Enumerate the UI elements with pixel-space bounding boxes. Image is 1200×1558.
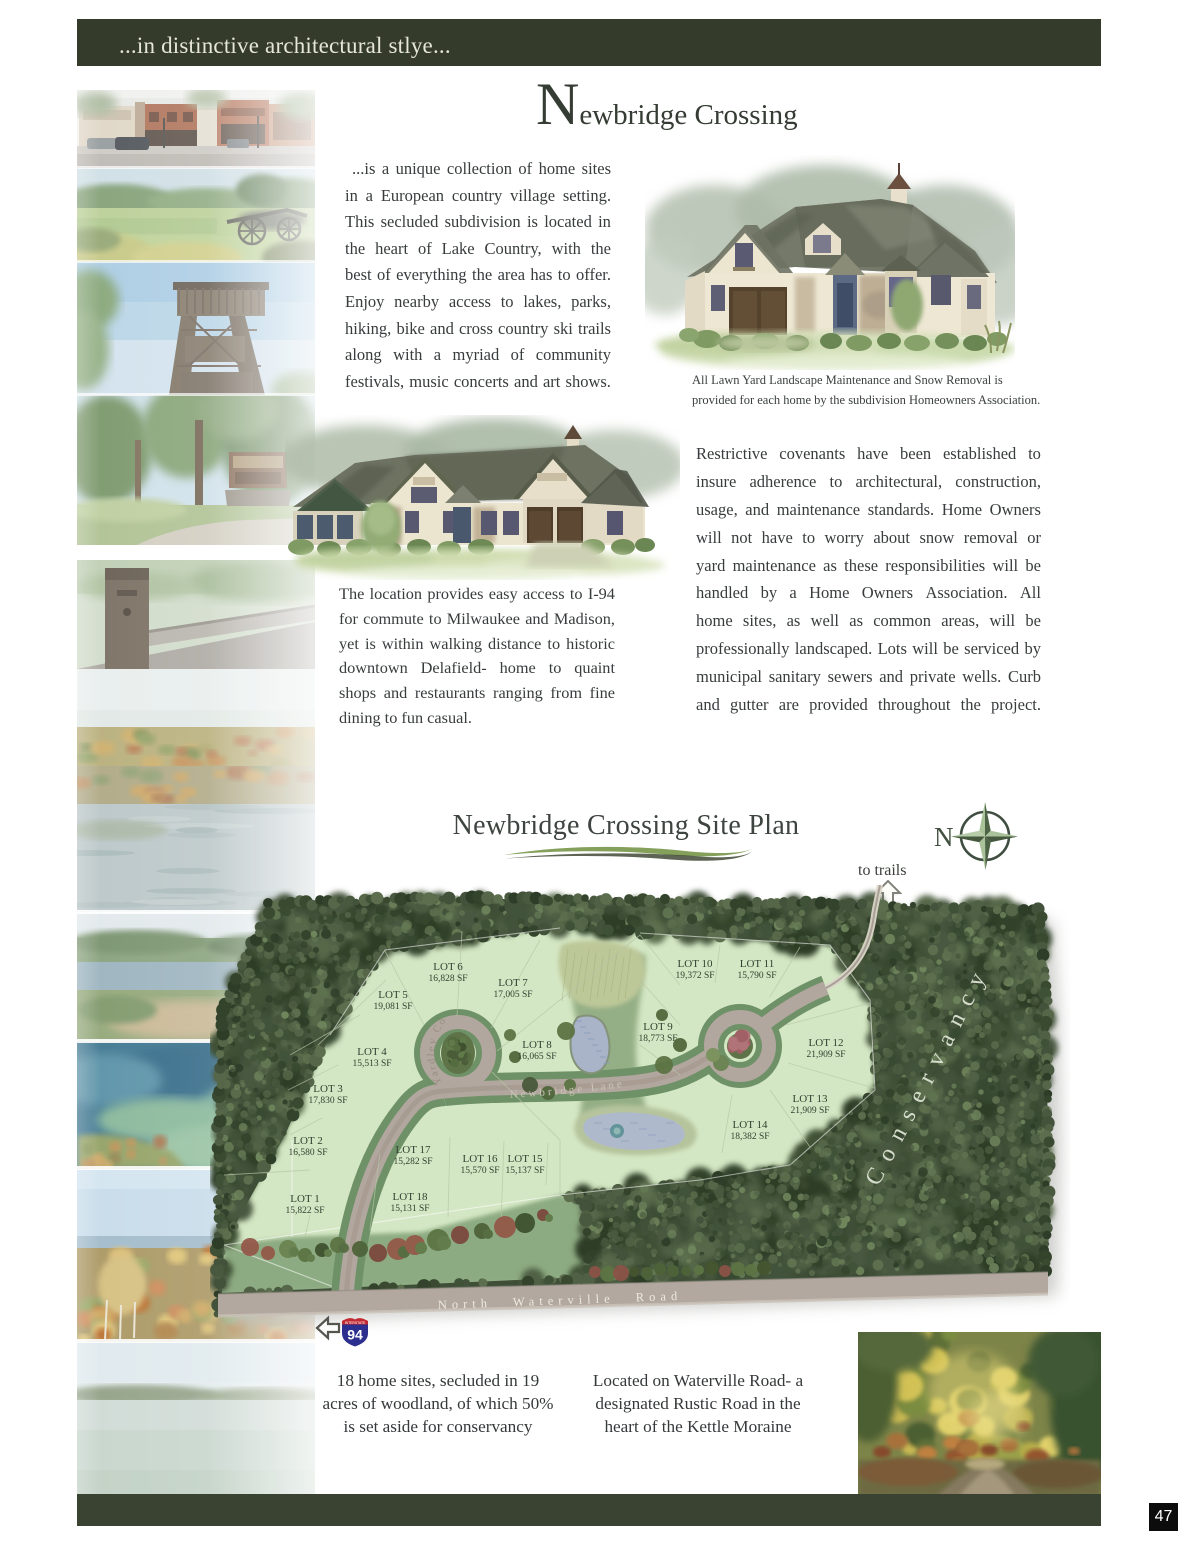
- svg-text:16,828 SF: 16,828 SF: [428, 974, 467, 984]
- svg-text:LOT 10: LOT 10: [678, 958, 713, 970]
- svg-text:LOT 17: LOT 17: [396, 1144, 431, 1156]
- svg-text:LOT 1: LOT 1: [290, 1193, 319, 1205]
- svg-text:LOT 14: LOT 14: [733, 1119, 768, 1131]
- svg-text:LOT 9: LOT 9: [643, 1021, 673, 1033]
- svg-text:94: 94: [347, 1327, 363, 1343]
- svg-text:LOT 13: LOT 13: [793, 1093, 828, 1105]
- svg-text:LOT 7: LOT 7: [498, 977, 528, 989]
- svg-text:LOT 15: LOT 15: [508, 1153, 543, 1165]
- svg-text:15,131 SF: 15,131 SF: [390, 1204, 429, 1214]
- svg-text:17,005 SF: 17,005 SF: [493, 990, 532, 1000]
- svg-text:21,909 SF: 21,909 SF: [790, 1106, 829, 1116]
- svg-text:N: N: [934, 822, 954, 852]
- svg-text:LOT 2: LOT 2: [293, 1135, 322, 1147]
- svg-text:15,137 SF: 15,137 SF: [505, 1166, 544, 1176]
- svg-text:LOT 4: LOT 4: [357, 1046, 387, 1058]
- svg-text:17,830 SF: 17,830 SF: [308, 1096, 347, 1106]
- svg-text:LOT 16: LOT 16: [463, 1153, 498, 1165]
- svg-text:16,065 SF: 16,065 SF: [517, 1052, 556, 1062]
- svg-text:LOT 6: LOT 6: [433, 961, 463, 973]
- svg-text:INTERSTATE: INTERSTATE: [345, 1321, 366, 1325]
- svg-text:LOT 11: LOT 11: [740, 958, 775, 970]
- svg-text:21,909 SF: 21,909 SF: [806, 1050, 845, 1060]
- svg-text:15,513 SF: 15,513 SF: [352, 1059, 391, 1069]
- svg-text:LOT 5: LOT 5: [378, 989, 408, 1001]
- svg-text:LOT 18: LOT 18: [393, 1191, 428, 1203]
- svg-text:18,773 SF: 18,773 SF: [638, 1034, 677, 1044]
- svg-text:15,790 SF: 15,790 SF: [737, 971, 776, 981]
- svg-text:15,822 SF: 15,822 SF: [285, 1206, 324, 1216]
- svg-text:LOT 12: LOT 12: [809, 1037, 844, 1049]
- svg-text:LOT 3: LOT 3: [313, 1083, 343, 1095]
- svg-text:19,081 SF: 19,081 SF: [373, 1002, 412, 1012]
- svg-text:16,580 SF: 16,580 SF: [288, 1148, 327, 1158]
- svg-text:15,570 SF: 15,570 SF: [460, 1166, 499, 1176]
- svg-text:LOT 8: LOT 8: [522, 1039, 552, 1051]
- svg-text:15,282 SF: 15,282 SF: [393, 1157, 432, 1167]
- svg-text:18,382 SF: 18,382 SF: [730, 1132, 769, 1142]
- svg-text:19,372 SF: 19,372 SF: [675, 971, 714, 981]
